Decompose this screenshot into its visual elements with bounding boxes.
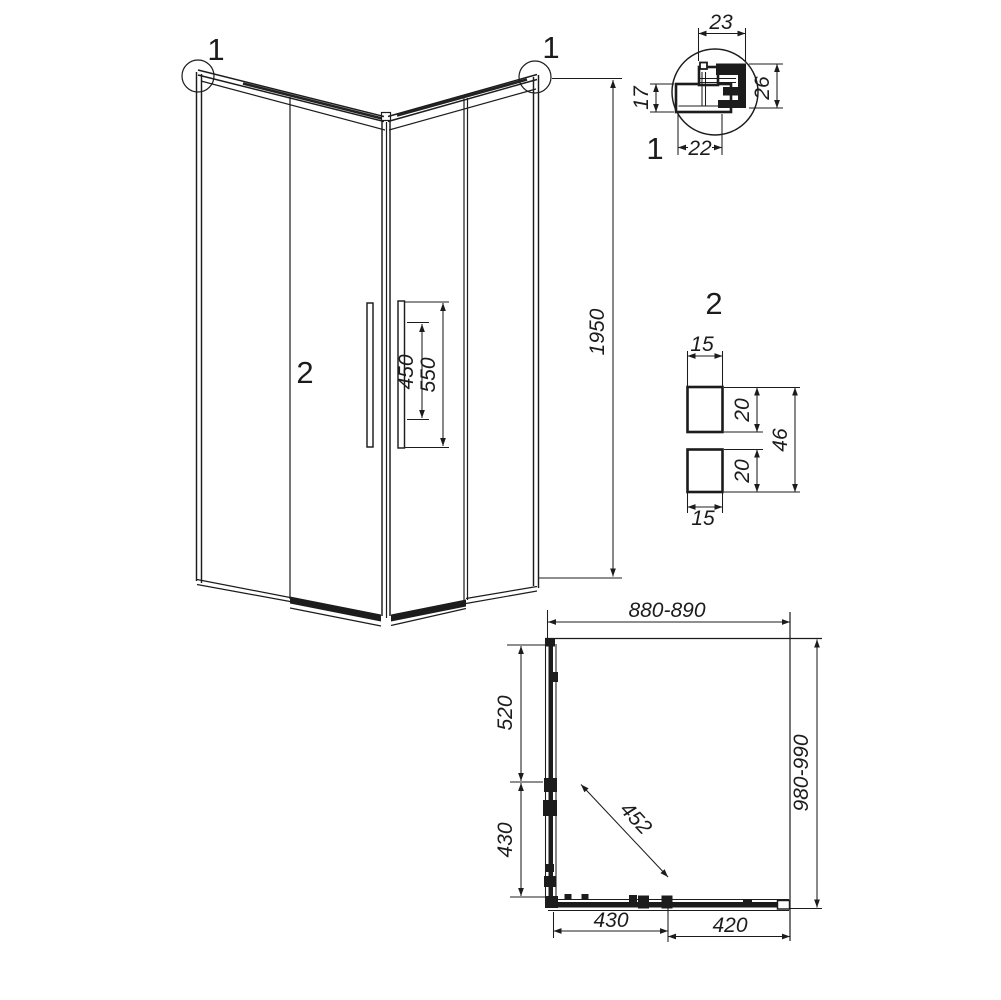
detail-1-dim-left: 17: [630, 85, 653, 110]
dim-handle: 450 550: [395, 302, 449, 448]
dim-plan-depth: 980-990: [790, 640, 822, 909]
drawing-svg: 1 1 2: [0, 0, 1001, 1000]
plan-view: 880-890 980-990 520 430 452 4: [494, 599, 822, 942]
callout-label-left: 1: [207, 32, 224, 67]
bottom-tracks: [197, 580, 537, 627]
technical-drawing-canvas: 1 1 2: [0, 0, 1001, 1000]
plan-left-wall: [543, 639, 558, 905]
dim-handle-outer-text: 550: [417, 357, 440, 392]
callout-circle-right: [519, 61, 551, 93]
callout-label-right: 1: [542, 30, 559, 65]
dim-height-text: 1950: [586, 308, 609, 355]
dim-plan-bottom-left-text: 430: [593, 909, 628, 932]
detail-view-2: 2 15 20 20 46 15: [688, 286, 801, 530]
detail-2-dim-total: 46: [769, 428, 792, 452]
detail-2-lower-profile: [688, 450, 723, 493]
main-view: 1 1 2: [182, 30, 622, 626]
dim-plan-left-lower-text: 430: [494, 822, 517, 857]
detail-view-1: 23 26 17 22 1: [630, 11, 783, 166]
detail-2-upper-profile: [688, 387, 723, 432]
detail-2-dim-upper: 20: [731, 398, 754, 423]
door-panel-label: 2: [296, 355, 313, 390]
detail-1-dim-top: 23: [708, 11, 733, 34]
detail-1-label: 1: [646, 131, 663, 166]
detail-2-dim-top: 15: [690, 333, 714, 356]
dim-plan-bottom-right-text: 420: [712, 914, 747, 937]
detail-1-dim-bottom: 22: [687, 137, 712, 160]
dim-plan-diagonal-text: 452: [615, 798, 656, 840]
dim-plan-depth-text: 980-990: [790, 734, 813, 811]
detail-2-label: 2: [705, 286, 722, 321]
left-door-handle: [367, 303, 373, 447]
top-rails: [198, 70, 537, 130]
plan-track-end-cap: [778, 901, 790, 910]
plan-bottom-wall: [545, 894, 790, 911]
dim-plan-width-text: 880-890: [628, 599, 705, 622]
detail-2-dim-lower: 20: [731, 459, 754, 484]
dim-plan-width: 880-890: [548, 599, 791, 640]
dim-plan-bottom: 430 420: [554, 908, 791, 942]
dim-height: 1950: [538, 79, 622, 579]
detail-2-dim-bottom: 15: [691, 507, 715, 530]
dim-handle-inner-text: 450: [395, 354, 418, 389]
dim-plan-diagonal: 452: [581, 785, 668, 878]
dim-plan-left-upper-text: 520: [494, 695, 517, 730]
detail-1-dim-right: 26: [751, 76, 774, 101]
dim-plan-left: 520 430: [494, 645, 548, 897]
